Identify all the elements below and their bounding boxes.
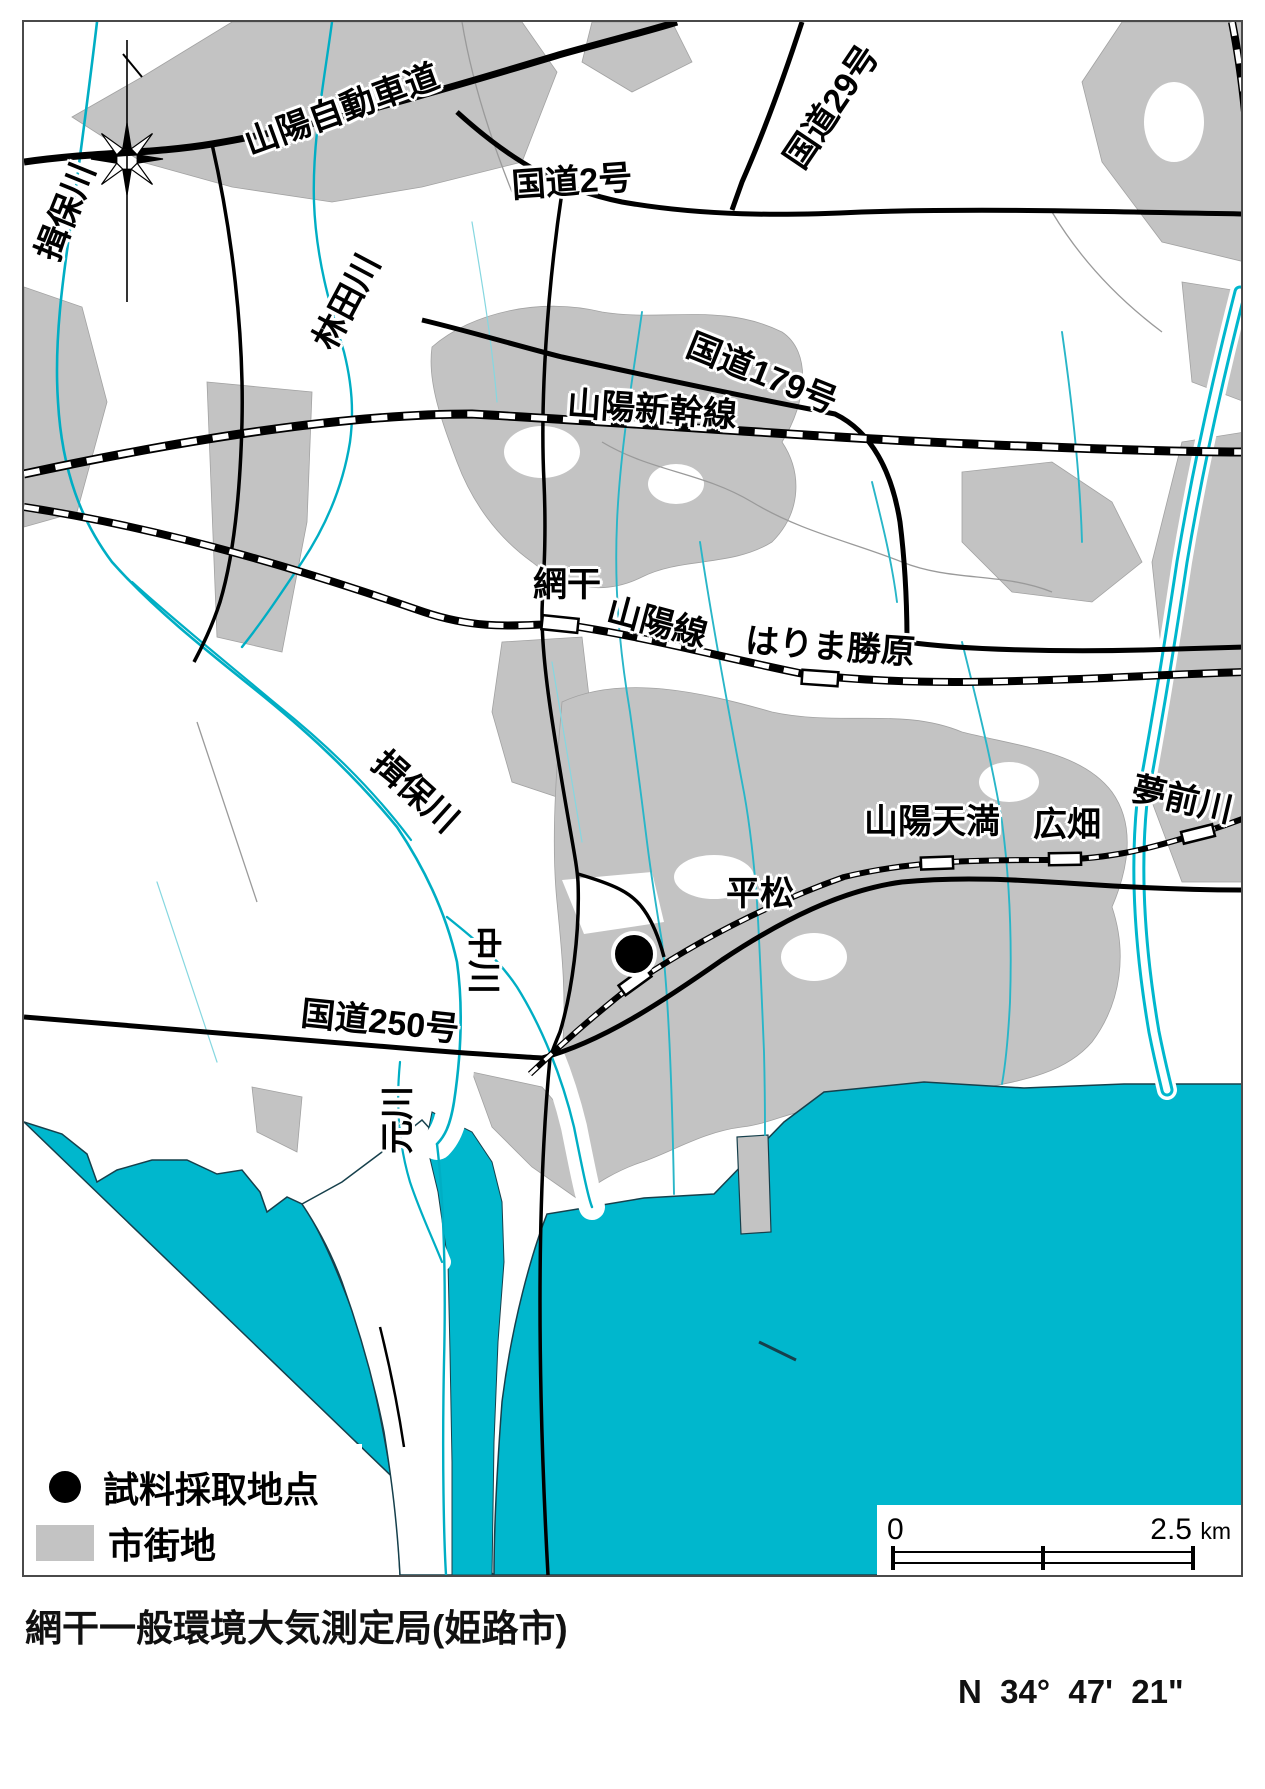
label-hirohata: 広畑	[1033, 808, 1101, 842]
station-marker-sanyo-tenma	[921, 856, 953, 869]
label-aboshi-station: 網干	[533, 568, 601, 602]
urban-area-legend-swatch	[36, 1525, 94, 1561]
legend-row-urban: 市街地	[27, 1517, 216, 1569]
scale-tick-left	[891, 1546, 895, 1570]
scale-bar-line	[891, 1551, 1195, 1564]
label-moto-river: 元川	[381, 1086, 415, 1154]
label-sanyo-tenma: 山陽天満	[864, 805, 1000, 839]
scale-end-number: 2.5	[1150, 1513, 1192, 1546]
map-canvas: 揖保川 山陽自動車道 国道2号 国道29号 林田川 国道179号 山陽新幹線 網…	[22, 20, 1243, 1577]
sampling-point-legend-icon	[49, 1471, 81, 1503]
map-title: 網干一般環境大気測定局(姫路市)	[25, 1598, 568, 1652]
road-route29	[732, 22, 802, 210]
scale-bar: 0 2.5 km	[879, 1507, 1243, 1577]
station-marker-hirohata	[1049, 853, 1081, 866]
legend-urban-label: 市街地	[108, 1517, 216, 1569]
legend: 試料採取地点 市街地	[27, 1445, 362, 1576]
scale-start-value: 0	[887, 1513, 904, 1547]
latitude-value: N 34° 47' 21"	[958, 1672, 1191, 1711]
page: 揖保川 山陽自動車道 国道2号 国道29号 林田川 国道179号 山陽新幹線 網…	[0, 0, 1265, 1789]
scale-tick-middle	[1041, 1546, 1045, 1570]
sampling-point-dot	[613, 933, 655, 975]
station-marker-aboshi	[541, 615, 578, 633]
scale-unit: km	[1200, 1518, 1231, 1544]
label-route2: 国道2号	[511, 161, 634, 203]
legend-row-sampling-point: 試料採取地点	[27, 1461, 319, 1513]
station-marker-harima-katsuhara	[802, 670, 839, 686]
scale-tick-right	[1191, 1546, 1195, 1570]
coordinates-block: N 34° 47' 21" E 134° 35' 19" (世界測地系)	[958, 1594, 1191, 1789]
label-hiramatsu: 平松	[726, 877, 794, 911]
legend-sampling-point-label: 試料採取地点	[103, 1461, 319, 1513]
label-naka-river: 中川	[466, 926, 500, 994]
scale-end-value: 2.5 km	[1150, 1513, 1231, 1547]
harbor-pier	[737, 1135, 771, 1234]
map-graphics	[24, 22, 1241, 1575]
